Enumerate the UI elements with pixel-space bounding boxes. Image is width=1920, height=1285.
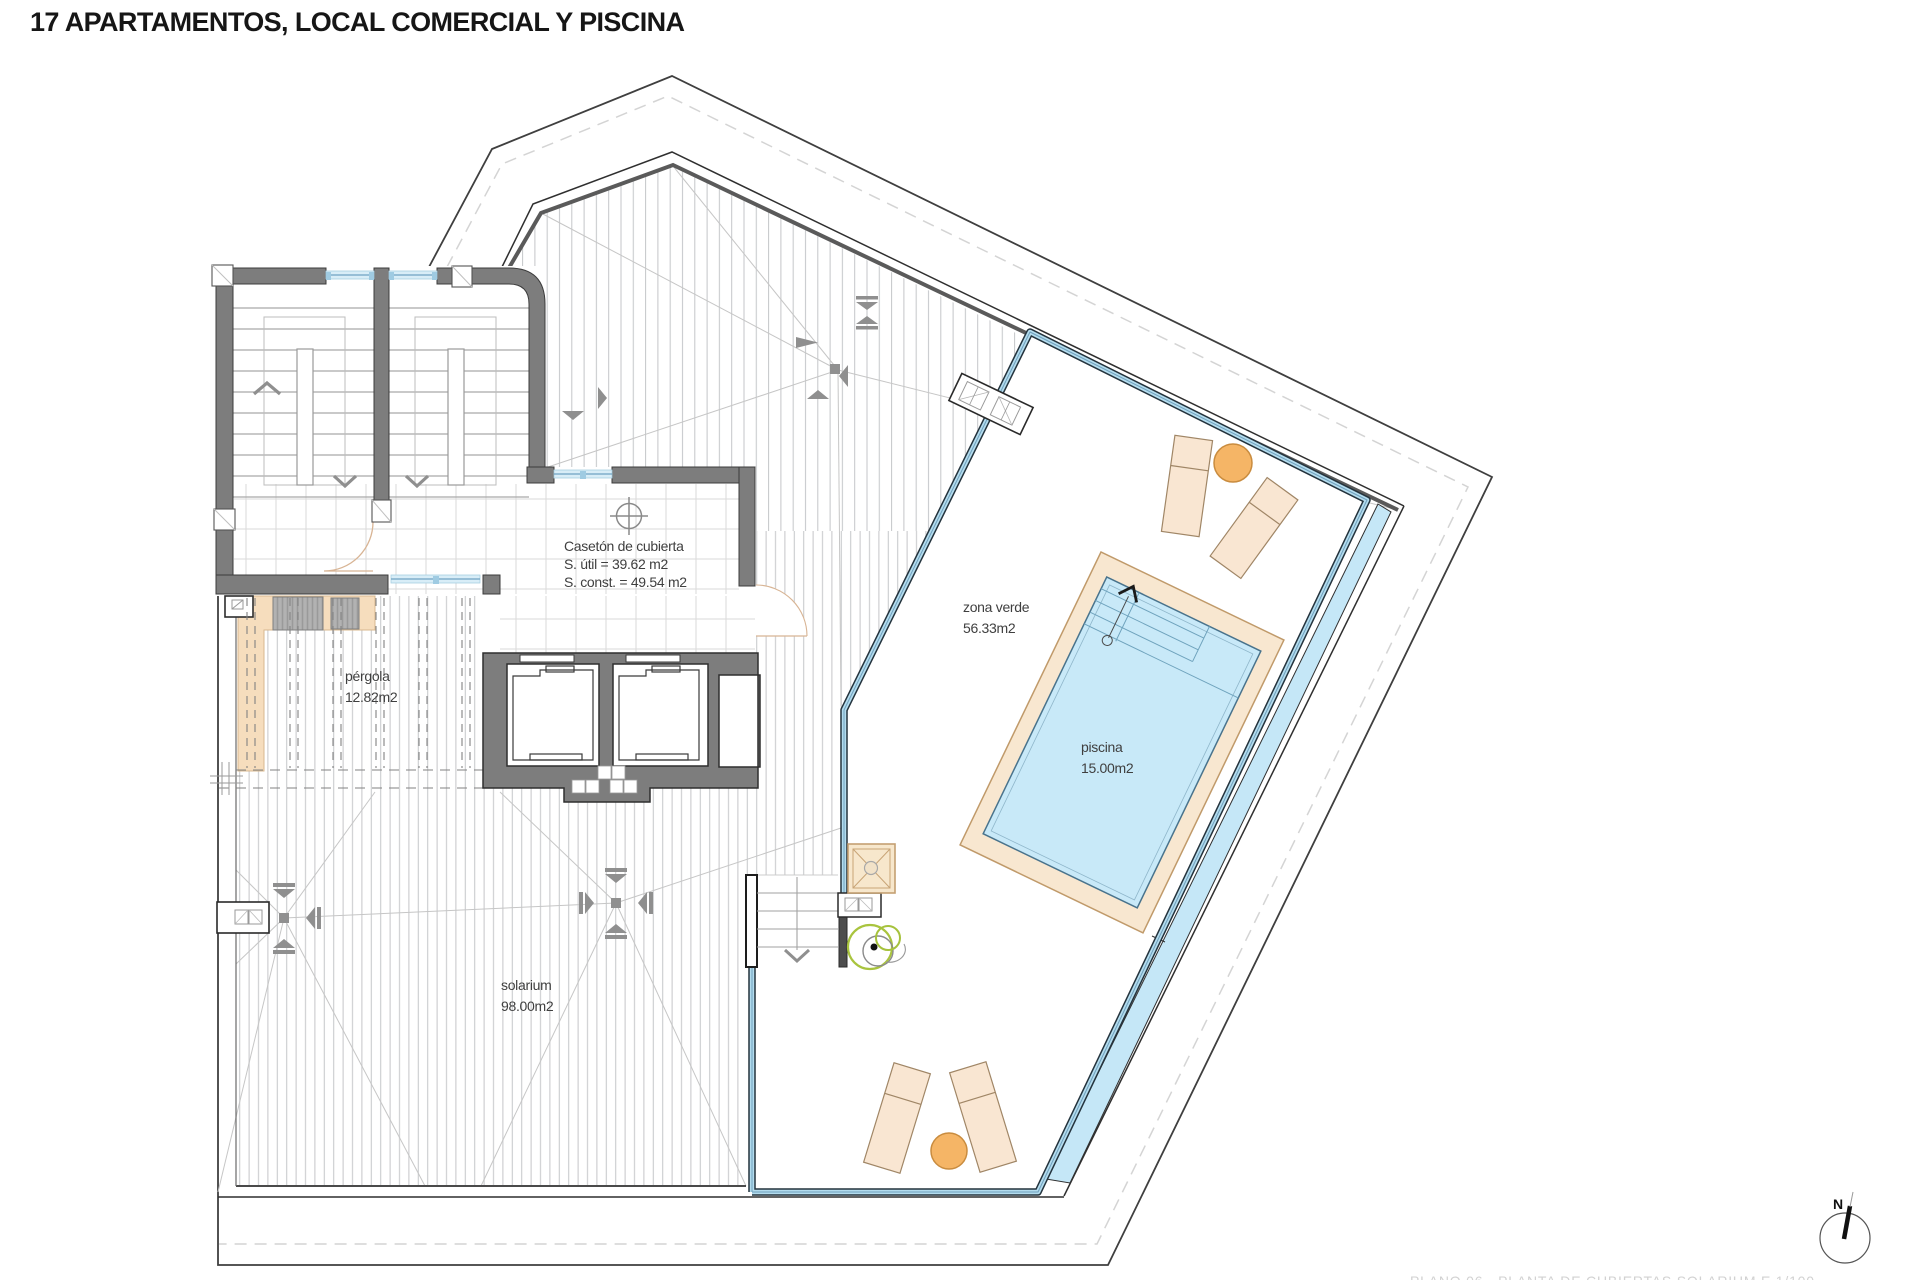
svg-text:solarium: solarium [501,977,552,993]
svg-text:PLANO 06 - PLANTA DE CUBIERTAS: PLANO 06 - PLANTA DE CUBIERTAS SOLARIUM … [1410,1273,1815,1280]
svg-text:12.82m2: 12.82m2 [345,689,398,705]
svg-text:56.33m2: 56.33m2 [963,620,1016,636]
svg-text:pérgola: pérgola [345,668,390,684]
svg-text:15.00m2: 15.00m2 [1081,760,1134,776]
svg-text:piscina: piscina [1081,739,1123,755]
svg-text:S. const. = 49.54 m2: S. const. = 49.54 m2 [564,574,687,590]
svg-text:17 APARTAMENTOS, LOCAL COMERCI: 17 APARTAMENTOS, LOCAL COMERCIAL Y PISCI… [30,7,684,37]
svg-text:zona verde: zona verde [963,599,1030,615]
svg-text:98.00m2: 98.00m2 [501,998,554,1014]
svg-text:Casetón de cubierta: Casetón de cubierta [564,538,684,554]
svg-text:S. útil = 39.62 m2: S. útil = 39.62 m2 [564,556,668,572]
svg-text:N: N [1833,1196,1843,1212]
